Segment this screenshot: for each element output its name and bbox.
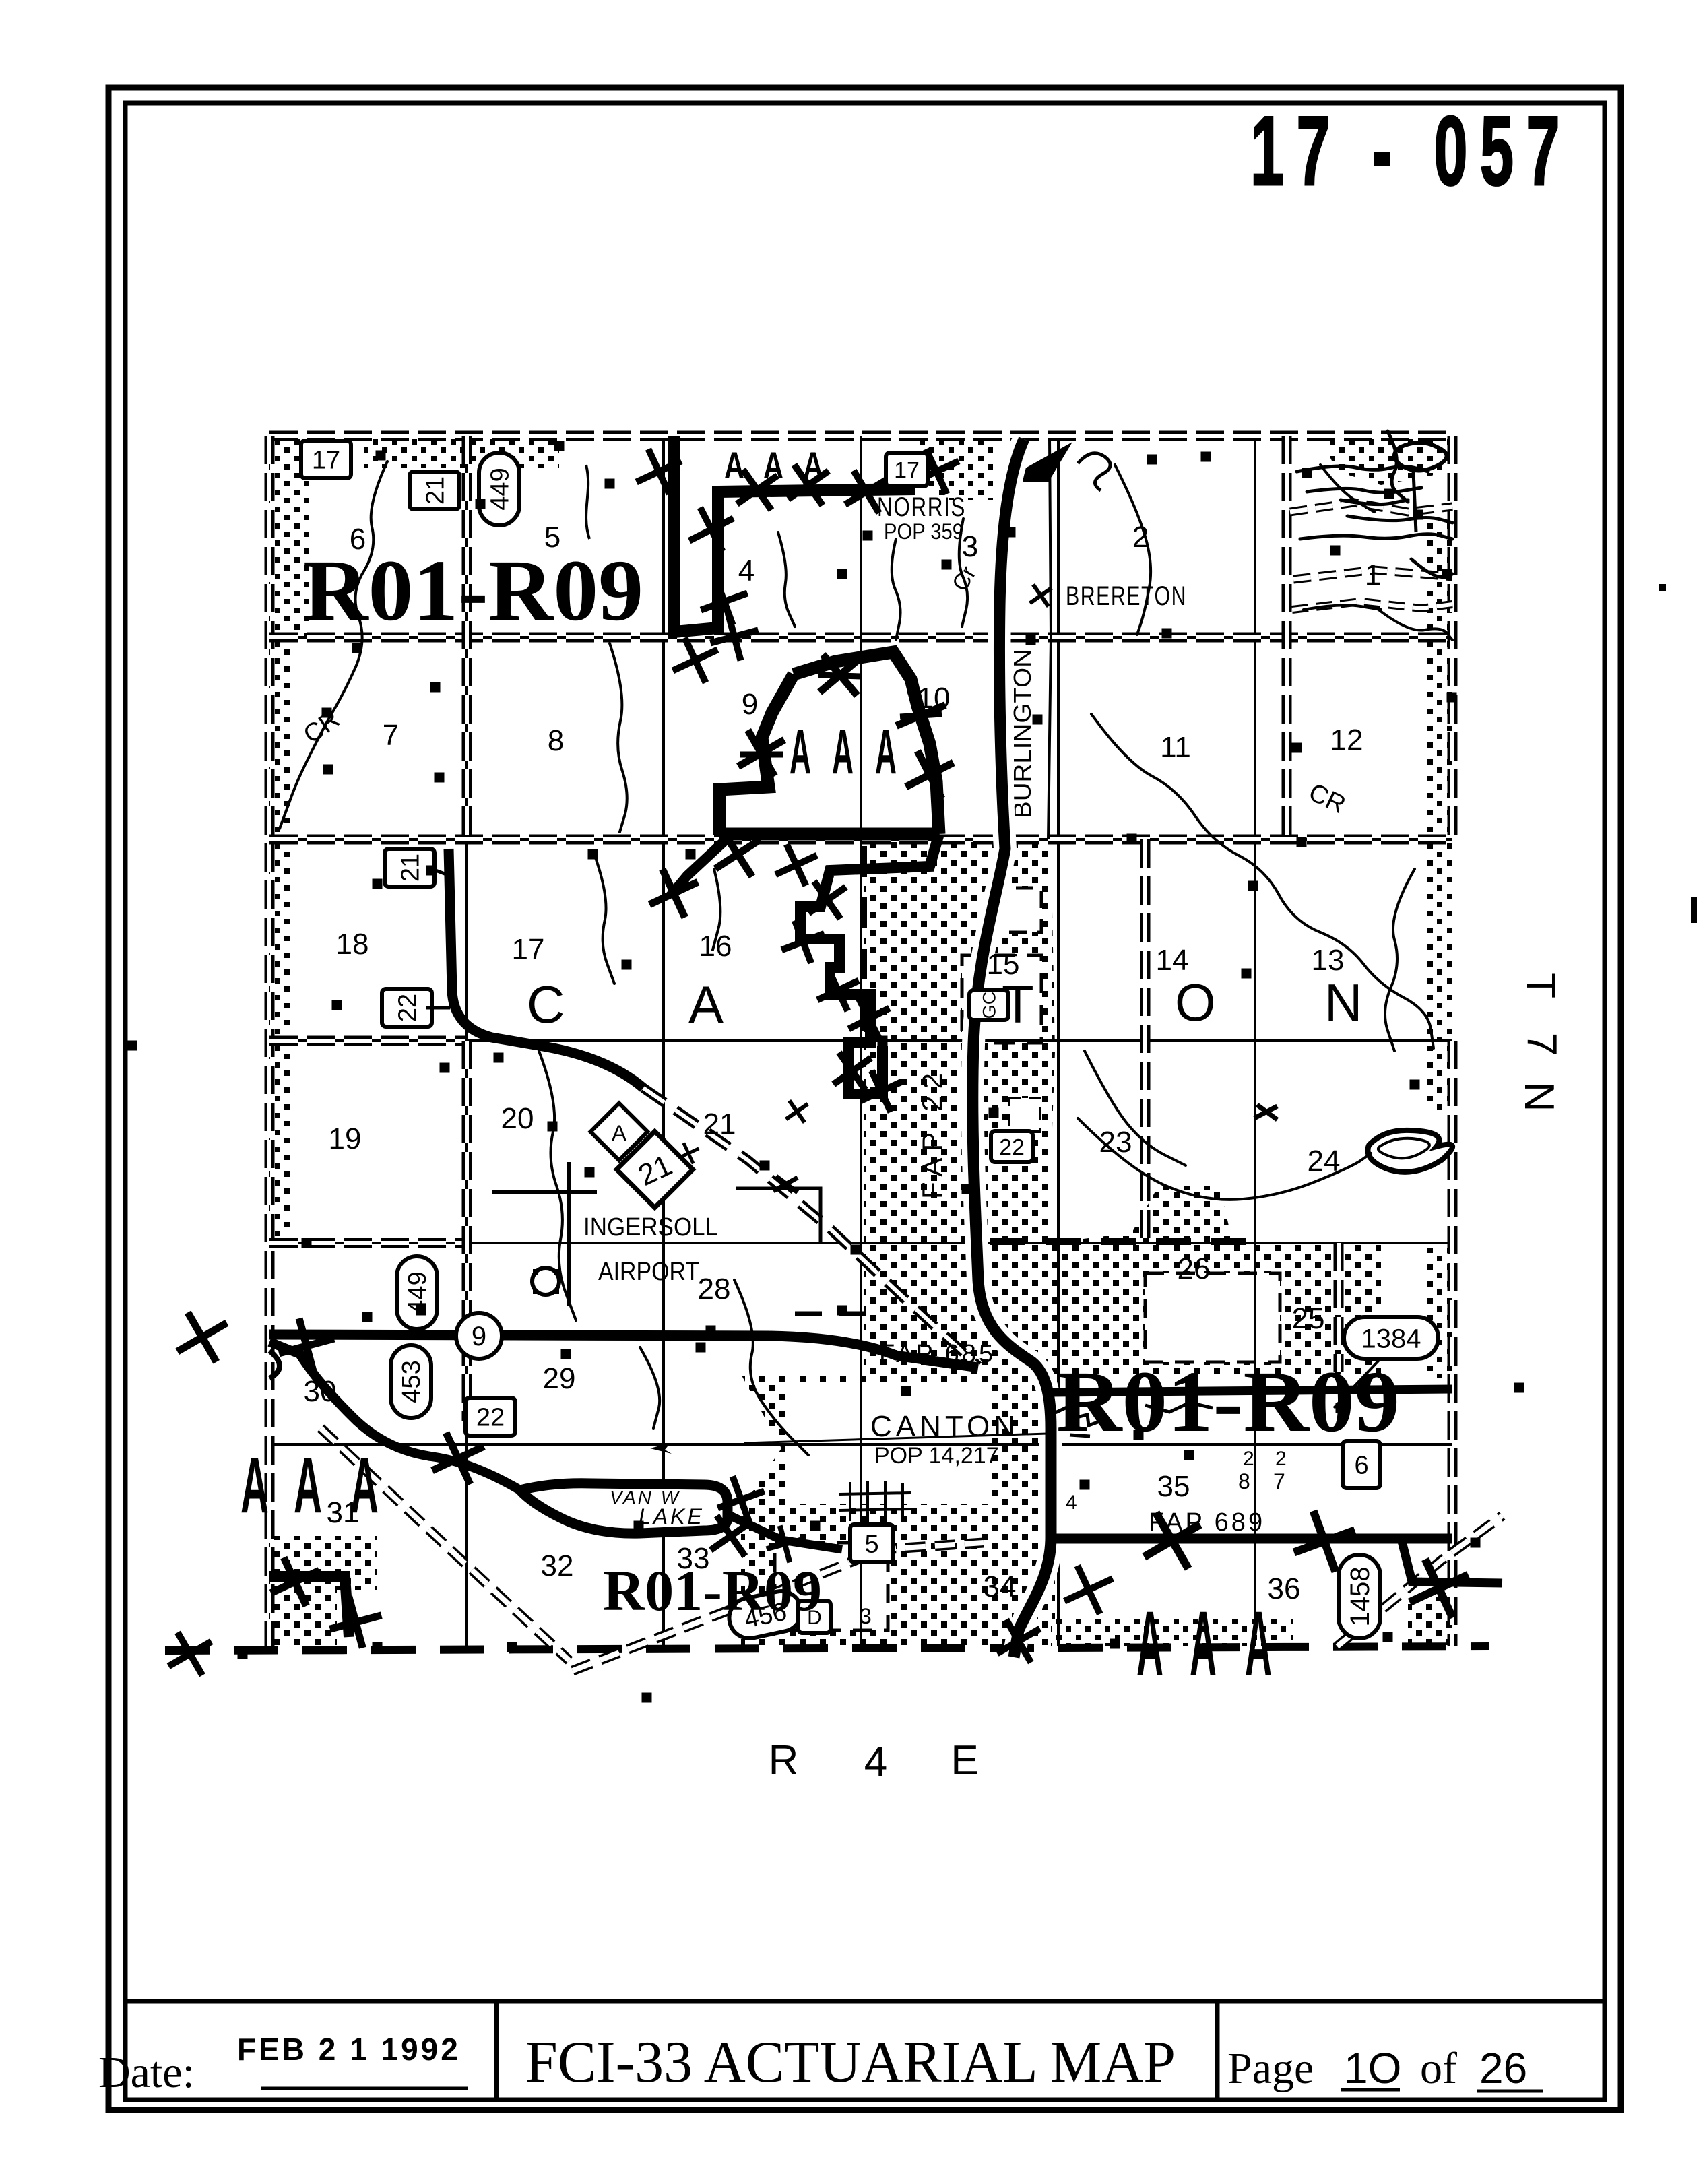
svg-text:R01-R09: R01-R09 (603, 1558, 822, 1623)
svg-text:2: 2 (1243, 1448, 1254, 1470)
svg-text:9: 9 (742, 688, 758, 721)
svg-text:17: 17 (512, 933, 545, 966)
svg-text:17: 17 (894, 457, 920, 483)
svg-text:1: 1 (1365, 558, 1381, 591)
svg-text:17: 17 (312, 447, 340, 475)
svg-text:Date:: Date: (98, 2048, 195, 2097)
svg-text:19: 19 (329, 1122, 362, 1155)
svg-text:A: A (803, 444, 823, 486)
svg-text:A: A (1190, 1593, 1217, 1696)
svg-text:10: 10 (918, 682, 951, 715)
svg-text:FEB 2 1 1992: FEB 2 1 1992 (237, 2032, 461, 2067)
svg-text:A: A (1136, 1593, 1163, 1696)
svg-text:3: 3 (962, 530, 978, 563)
svg-text:453: 453 (397, 1360, 426, 1403)
svg-text:25: 25 (1292, 1302, 1325, 1335)
svg-text:11: 11 (1160, 731, 1191, 764)
svg-text:18: 18 (336, 928, 369, 961)
svg-text:35: 35 (1157, 1470, 1190, 1503)
svg-text:A: A (763, 444, 783, 486)
svg-text:BRERETON: BRERETON (1066, 581, 1187, 611)
svg-text:26: 26 (1479, 2044, 1527, 2092)
svg-text:R01-R09: R01-R09 (1056, 1353, 1400, 1450)
svg-text:34: 34 (984, 1570, 1017, 1603)
svg-text:22: 22 (394, 994, 422, 1022)
svg-text:POP 359: POP 359 (884, 519, 963, 544)
svg-text:N: N (1324, 973, 1362, 1032)
svg-text:3: 3 (860, 1604, 872, 1628)
svg-text:FAP 689: FAP 689 (1149, 1508, 1265, 1537)
svg-text:1384: 1384 (1361, 1324, 1421, 1353)
svg-text:4: 4 (864, 1739, 887, 1785)
svg-text:7: 7 (383, 719, 399, 752)
svg-text:8: 8 (548, 724, 564, 757)
svg-text:of: of (1420, 2044, 1457, 2093)
svg-text:R01-R09: R01-R09 (303, 542, 643, 639)
svg-text:1458: 1458 (1345, 1567, 1375, 1627)
svg-text:FCI-33 ACTUARIAL MAP: FCI-33 ACTUARIAL MAP (525, 2030, 1176, 2095)
svg-text:A: A (688, 975, 724, 1034)
svg-text:NORRIS: NORRIS (877, 492, 966, 522)
svg-text:32: 32 (541, 1549, 574, 1582)
svg-text:A: A (240, 1441, 269, 1530)
svg-text:21: 21 (397, 854, 425, 882)
svg-text:4: 4 (1066, 1491, 1077, 1514)
svg-text:A: A (1245, 1593, 1272, 1696)
svg-text:2: 2 (1275, 1448, 1287, 1470)
svg-text:22: 22 (999, 1134, 1025, 1160)
svg-text:7: 7 (1273, 1469, 1285, 1494)
svg-text:6: 6 (1354, 1452, 1368, 1480)
svg-text:A: A (832, 716, 854, 788)
svg-text:Page: Page (1227, 2044, 1314, 2093)
svg-text:21: 21 (703, 1107, 736, 1141)
svg-text:36: 36 (1268, 1572, 1301, 1605)
svg-text:C: C (527, 975, 565, 1034)
svg-text:22: 22 (476, 1404, 505, 1432)
svg-text:8: 8 (1238, 1469, 1250, 1494)
svg-text:A: A (350, 1441, 379, 1530)
svg-text:14: 14 (1156, 944, 1189, 977)
svg-text:5: 5 (864, 1531, 878, 1559)
svg-text:O: O (1175, 973, 1216, 1032)
svg-text:26: 26 (1178, 1252, 1211, 1285)
svg-text:A: A (875, 716, 897, 788)
svg-text:28: 28 (698, 1273, 731, 1306)
svg-text:LAKE: LAKE (639, 1504, 705, 1529)
svg-text:23: 23 (1099, 1126, 1132, 1159)
svg-text:20: 20 (501, 1102, 534, 1135)
svg-text:FAP 22: FAP 22 (916, 1066, 948, 1199)
svg-text:15: 15 (987, 948, 1020, 981)
svg-text:7: 7 (1518, 1033, 1565, 1056)
svg-text:4: 4 (738, 554, 754, 587)
svg-text:FAP 685: FAP 685 (879, 1340, 996, 1368)
svg-text:A: A (612, 1121, 627, 1147)
svg-text:1O: 1O (1344, 2044, 1401, 2092)
svg-text:INGERSOLL: INGERSOLL (583, 1213, 718, 1242)
svg-text:29: 29 (543, 1362, 576, 1395)
svg-text:A: A (294, 1441, 322, 1530)
svg-text:9: 9 (472, 1322, 486, 1351)
svg-text:E: E (951, 1737, 978, 1784)
svg-text:AIRPORT: AIRPORT (598, 1258, 699, 1286)
svg-text:POP 14,217: POP 14,217 (874, 1443, 999, 1469)
svg-text:T: T (1517, 973, 1564, 998)
svg-text:21: 21 (422, 476, 450, 505)
svg-text:16: 16 (699, 930, 732, 963)
svg-text:A: A (790, 716, 811, 788)
svg-text:2: 2 (1132, 521, 1149, 554)
svg-text:N: N (1516, 1082, 1562, 1112)
svg-text:R: R (769, 1737, 799, 1784)
svg-text:A: A (724, 444, 744, 486)
svg-text:24: 24 (1308, 1145, 1341, 1178)
svg-text:12: 12 (1330, 724, 1363, 757)
svg-text:449: 449 (486, 468, 515, 510)
svg-text:30: 30 (304, 1375, 337, 1408)
svg-text:17 - 057: 17 - 057 (1250, 96, 1572, 205)
svg-text:GC: GC (979, 992, 1000, 1019)
svg-text:13: 13 (1312, 944, 1345, 977)
